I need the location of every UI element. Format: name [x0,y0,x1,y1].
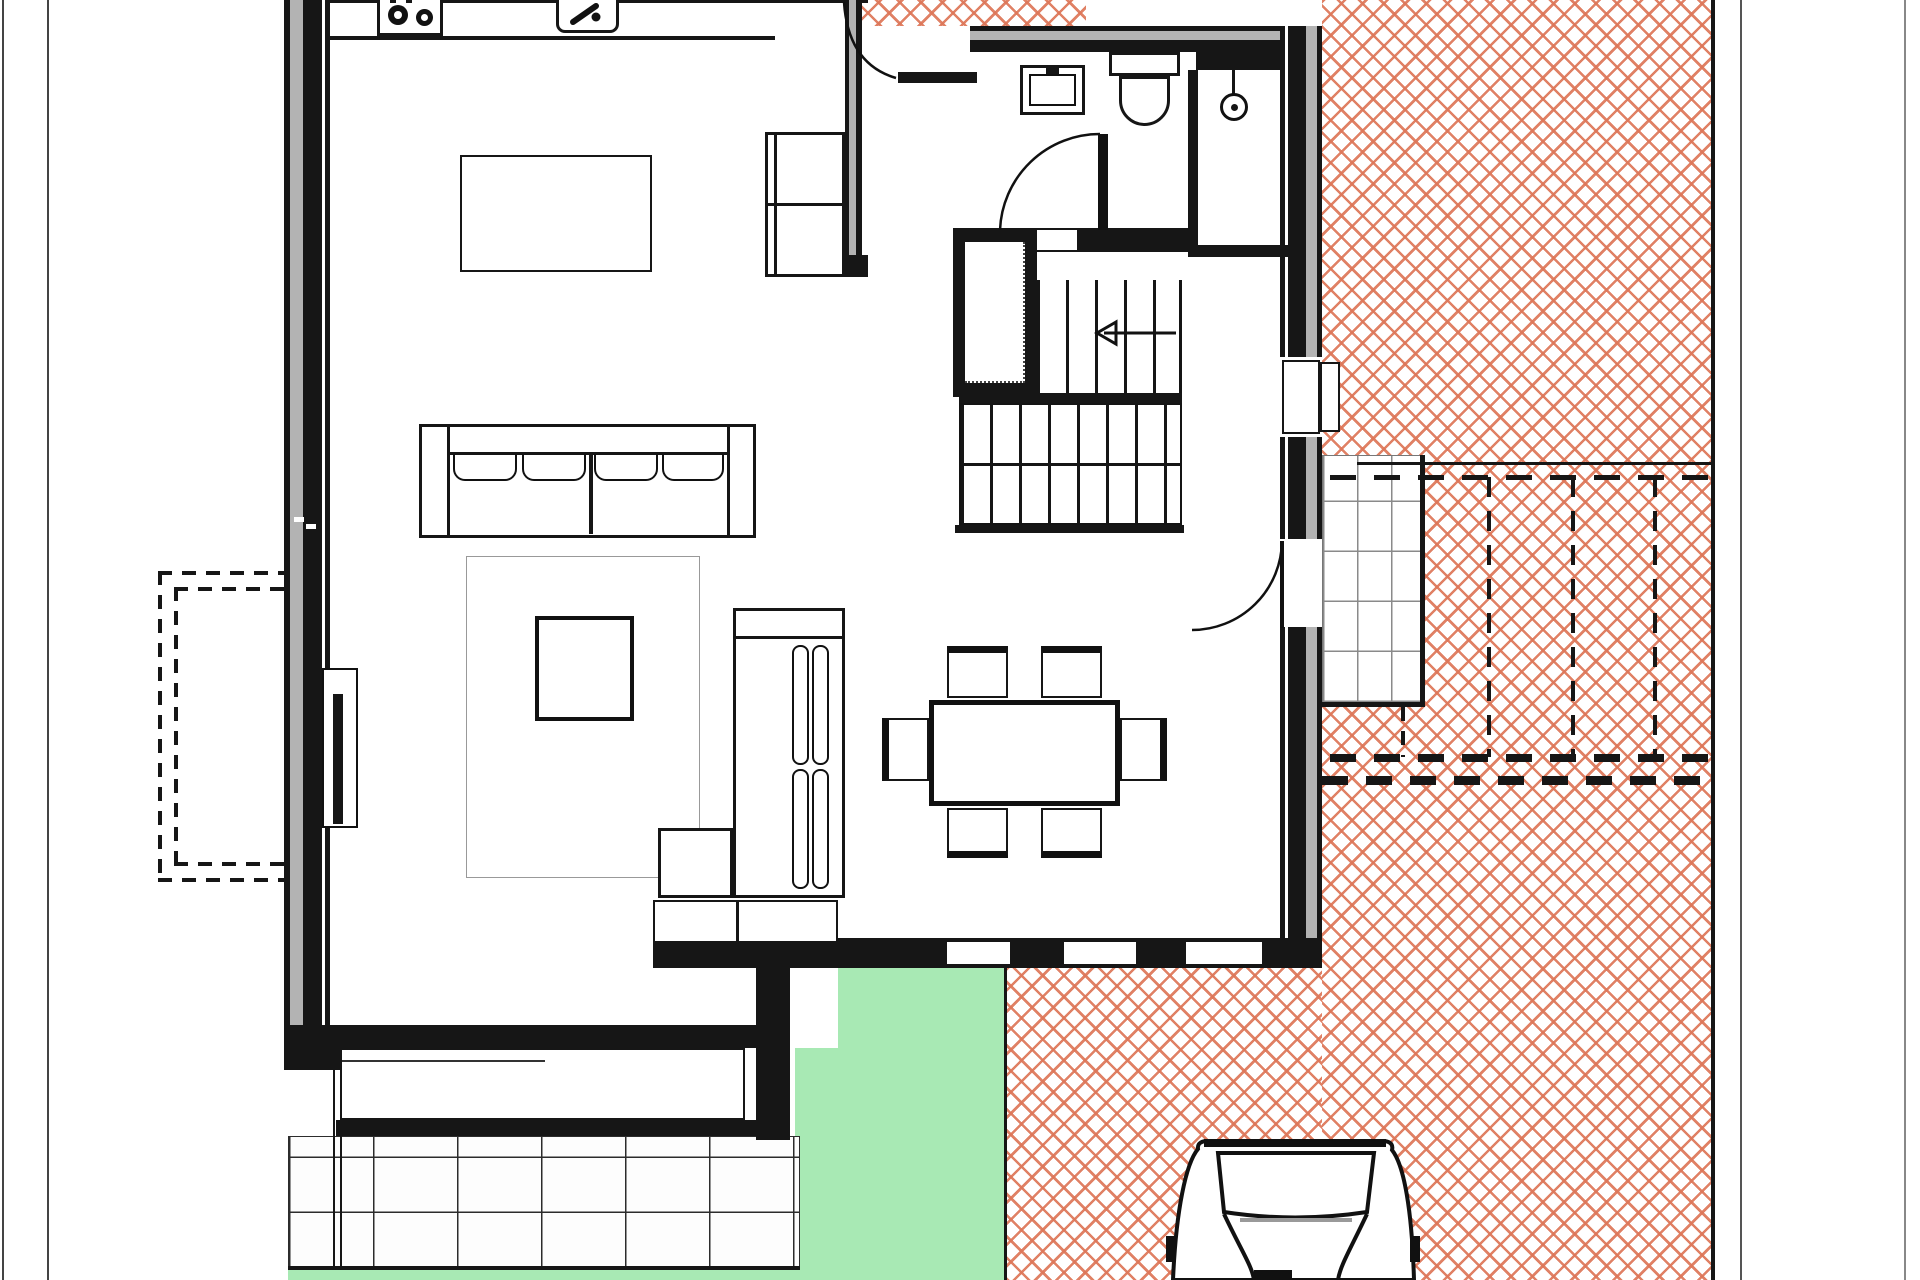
lawn-bottom-strip [288,1270,795,1280]
stove-icon [377,0,443,36]
sofa-cushion-3 [594,454,658,481]
stove-knob-1 [390,0,396,3]
lawn-driveway-border [1004,968,1007,1280]
chaise-daybed [733,608,845,898]
sofa-cushion-4 [662,454,724,481]
chaise-cushion-2 [792,769,809,889]
burner-1-center [394,11,402,19]
wall-left-joint [294,517,304,522]
frame-line-left-inner [47,0,49,1280]
driveway-paving [1006,968,1322,1280]
wall-right [1280,26,1322,943]
chaise-top-band [736,636,842,639]
burner-2-center [421,14,428,21]
radiator-core [333,694,343,824]
bathroom-door-arc [1000,134,1100,230]
step-edge-1 [1487,477,1491,757]
shower-head-dot [1231,104,1238,111]
bottom-long-window [340,1048,745,1120]
stair-landing-bottom-edge [1322,702,1425,707]
floor-plan-canvas [0,0,1920,1280]
stairs-lower-midline [961,463,1180,466]
stair-closet-interior [965,242,1025,383]
entry-door-leaf [898,72,977,83]
entry-landing-paving [858,0,1086,26]
right-window-sill [1320,362,1340,432]
terrace-tile-grid [288,1136,800,1269]
sofa-arm-left [447,427,450,535]
overhang-dash-left-inner [174,587,178,866]
step-edge-3 [1653,477,1657,757]
sofa [419,424,756,538]
paving-right-boundary [1711,0,1715,1280]
wall-bottom-left-sill [336,1120,756,1136]
side-door-opening [1280,539,1322,627]
shelf-edge [774,135,777,274]
stairs-bottom-bar [955,525,1184,533]
shelf-unit [765,132,845,277]
dining-chair-right [1120,718,1167,781]
bottom-window-bay [653,900,838,943]
lawn-upper [838,968,1006,1048]
frame-line-left-outer [2,0,4,1280]
shelf-divider [768,203,842,206]
sofa-seat-divider [589,454,593,534]
chaise-cushion-4 [812,769,829,889]
terrace-bottom-edge [288,1266,800,1270]
stove-knob-2 [406,0,412,3]
steps-top-line [1357,462,1711,465]
dining-chair-top-1 [947,646,1008,698]
dining-chair-bottom-1 [947,808,1008,858]
steps-small-dash [1401,707,1405,757]
toilet-tank [1109,52,1180,76]
overhang-dash-top-outer [158,571,285,575]
sofa-arm-right [727,427,730,535]
bottom-window-3 [1186,942,1262,964]
wall-hall-partition [845,0,862,255]
bathroom-door-leaf [1098,134,1108,230]
kitchen-sink-icon [556,0,619,33]
coffee-table [535,616,634,721]
kitchen-island [460,155,652,272]
steps-bottom-dashed-1 [1330,754,1711,762]
overhang-dash-bottom-outer [158,878,285,882]
frame-line-right-outer [1904,0,1906,1280]
dining-chair-bottom-2 [1041,808,1102,858]
shower-head-icon [1220,93,1248,121]
dining-table [929,700,1120,806]
bottom-window-bay-divider [736,902,739,941]
stair-landing-right-edge [1420,455,1425,707]
sofa-cushion-1 [453,454,517,481]
bottom-window-2 [1064,942,1136,964]
overhang-dash-bottom-inner [174,862,285,866]
basin-tap [1046,65,1059,74]
chaise-cushion-3 [812,645,829,765]
stairs-upper-run [1037,280,1182,393]
toilet-bowl-icon [1119,76,1170,126]
right-window-frame [1282,360,1320,434]
wall-bottom-left-top-bar [340,1025,790,1048]
radiator [322,668,358,828]
stair-landing-grid [1322,455,1422,703]
sofa-cushion-2 [522,454,586,481]
stairs-mid-bar [959,393,1182,403]
shower-wall-bottom [1188,245,1288,257]
kitchen-counter-line [330,36,775,40]
dining-chair-top-2 [1041,646,1102,698]
shower-wall-left [1188,70,1198,252]
steps-bottom-dashed-2 [1322,776,1711,785]
overhang-dash-top-inner [174,587,285,591]
step-edge-2 [1571,477,1575,757]
wall-left-joint-2 [306,524,316,529]
wash-basin-icon [1020,65,1085,115]
basin-inner [1029,74,1076,106]
shower-wall-top [1196,52,1285,70]
tv-lowboard [658,828,733,898]
bottom-long-window-glassline [342,1060,545,1062]
frame-line-right-inner [1740,0,1742,1280]
chaise-cushion-1 [792,645,809,765]
wall-bottom-left-corner [284,1025,340,1070]
terrace-edge-line-a [333,1048,335,1269]
dining-chair-left [882,718,929,781]
side-door-arc [1192,541,1282,630]
wall-bathroom-top [970,26,1322,52]
bottom-window-1 [947,942,1010,964]
overhang-dash-left-outer [158,571,162,882]
lawn [795,1048,1006,1280]
